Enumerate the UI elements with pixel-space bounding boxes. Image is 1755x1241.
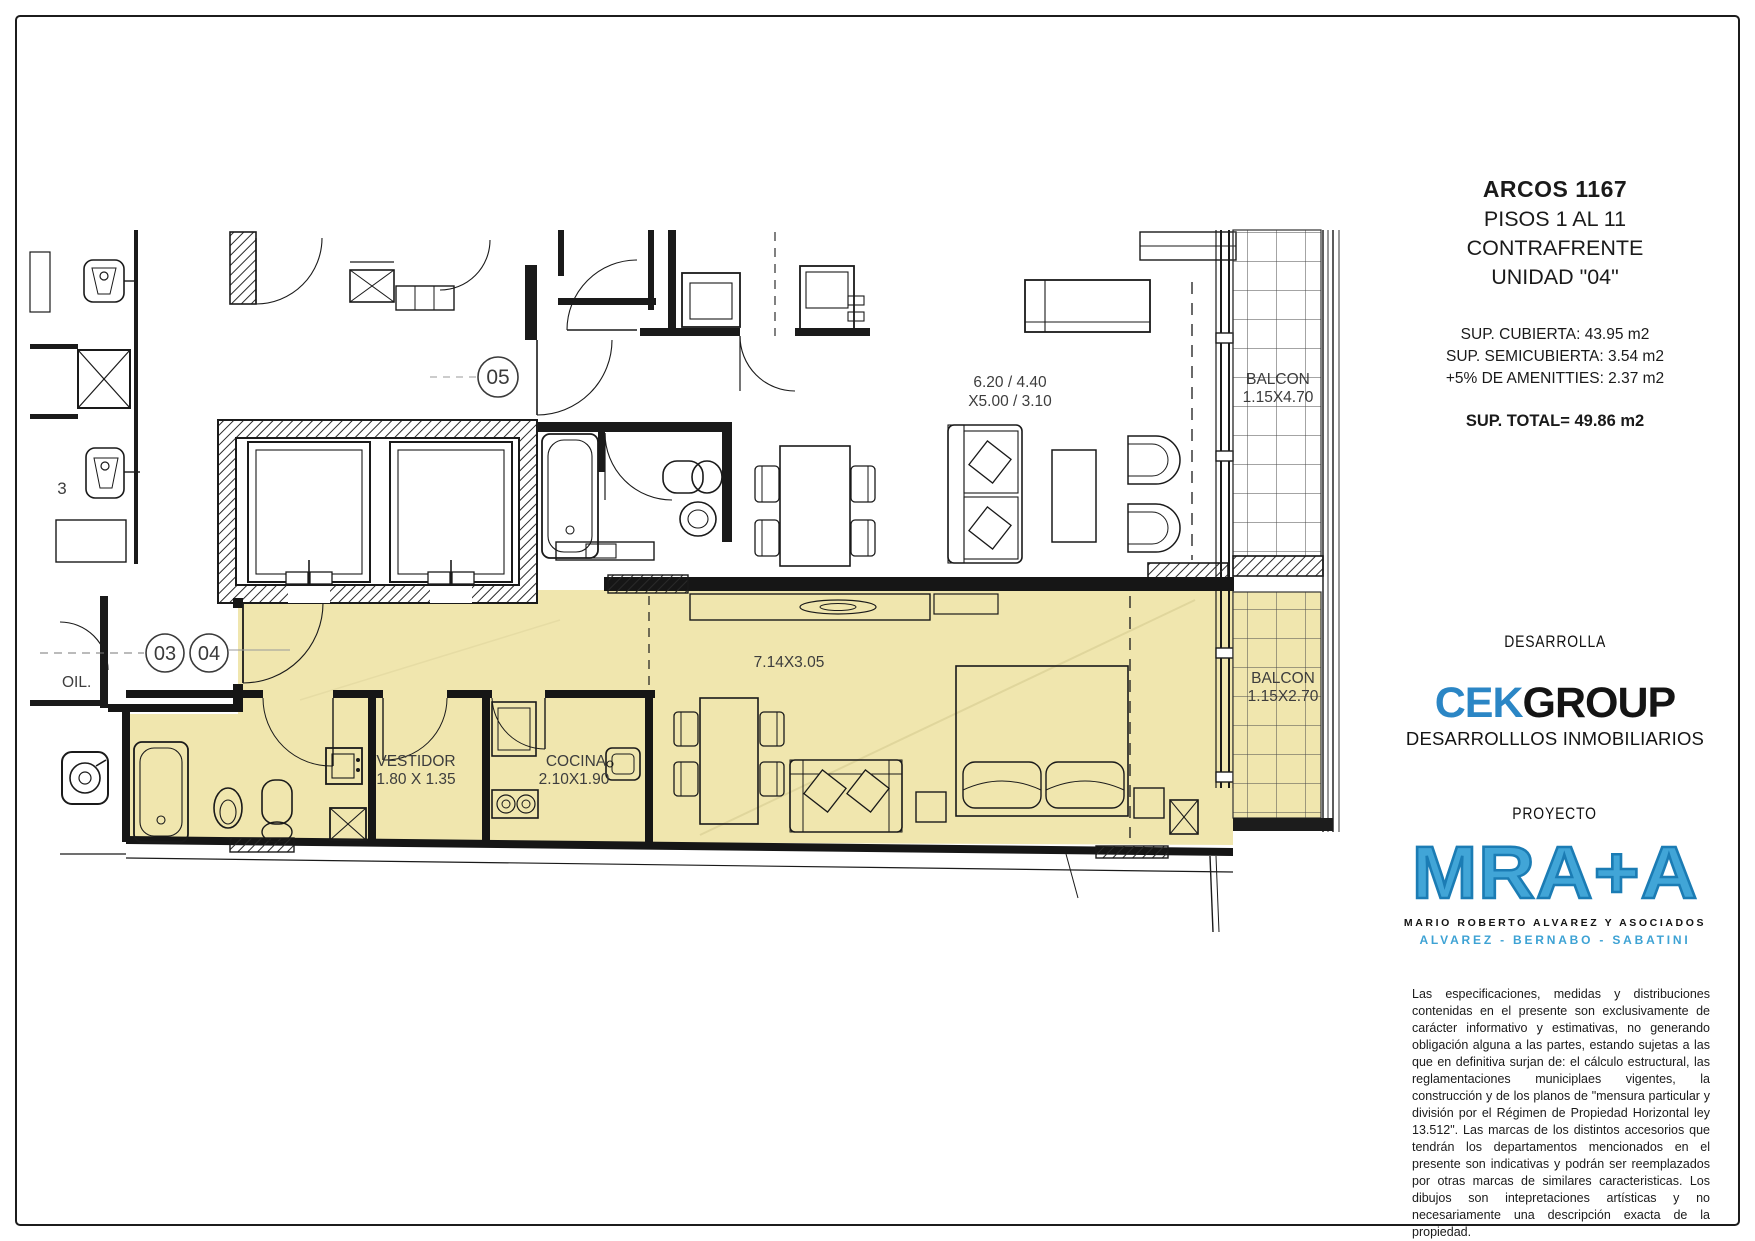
area-covered: SUP. CUBIERTA: 43.95 m2	[1392, 324, 1718, 346]
project-unit: UNIDAD "04"	[1392, 265, 1718, 290]
upper-dims-line2: X5.00 / 3.10	[968, 393, 1052, 410]
project-title: ARCOS 1167	[1392, 176, 1718, 203]
project-floors: PISOS 1 AL 11	[1392, 207, 1718, 232]
unit05-bathroom	[537, 422, 732, 560]
balcony-lower-dims: 1.15X2.70	[1248, 688, 1319, 705]
architect-logo-text: MRA+A	[1412, 838, 1698, 908]
left-partial-label: OIL.	[62, 674, 91, 691]
project-orientation: CONTRAFRENTE	[1392, 236, 1718, 261]
developer-logo: CEKGROUP DESARROLLLOS INMOBILIARIOS	[1392, 682, 1718, 749]
cocina-dims: 2.10X1.90	[539, 771, 610, 788]
developer-logo-cek: CEK	[1435, 679, 1523, 727]
architect-partners: ALVAREZ - BERNABO - SABATINI	[1392, 933, 1718, 947]
developer-logo-group: GROUP	[1523, 679, 1676, 727]
area-semicovered: SUP. SEMICUBIERTA: 3.54 m2	[1392, 346, 1718, 368]
upper-unit-living	[755, 282, 1192, 566]
left-partial-number: 3	[57, 479, 66, 498]
vestidor-dims: 1.80 X 1.35	[376, 771, 455, 788]
area-total: SUP. TOTAL= 49.86 m2	[1392, 412, 1718, 431]
balcony-upper-dims: 1.15X4.70	[1243, 389, 1314, 406]
unit04-circle-label: 04	[198, 643, 220, 665]
developer-label: DESARROLLA	[1392, 632, 1718, 652]
plan-sheet: 05 03 04 6.20 / 4.40 X5.00 / 3.10 BALCON…	[0, 0, 1755, 1241]
area-amenities: +5% DE AMENITTIES: 2.37 m2	[1392, 368, 1718, 390]
project-header: ARCOS 1167 PISOS 1 AL 11 CONTRAFRENTE UN…	[1392, 176, 1718, 290]
balcony-lower-label: BALCON	[1251, 670, 1315, 687]
unit05-circle-label: 05	[486, 366, 509, 389]
title-block: ARCOS 1167 PISOS 1 AL 11 CONTRAFRENTE UN…	[1392, 0, 1718, 1241]
developer-logo-subtitle: DESARROLLLOS INMOBILIARIOS	[1392, 730, 1718, 749]
upper-units-structure	[230, 230, 1236, 415]
architect-label: PROYECTO	[1392, 804, 1718, 824]
legal-disclaimer: Las especificaciones, medidas y distribu…	[1412, 986, 1710, 1241]
area-summary: SUP. CUBIERTA: 43.95 m2 SUP. SEMICUBIERT…	[1392, 324, 1718, 390]
cocina-label: COCINA	[546, 753, 607, 770]
living-dims-label: 7.14X3.05	[754, 654, 825, 671]
architect-name: MARIO ROBERTO ALVAREZ Y ASOCIADOS	[1392, 917, 1718, 929]
unit03-circle-label: 03	[154, 643, 176, 665]
balcony-upper-label: BALCON	[1246, 371, 1310, 388]
elevator-core	[218, 420, 537, 603]
upper-dims-line1: 6.20 / 4.40	[973, 374, 1047, 391]
architect-logo: MRA+A MARIO ROBERTO ALVAREZ Y ASOCIADOS …	[1392, 838, 1718, 947]
vestidor-label: VESTIDOR	[376, 753, 455, 770]
